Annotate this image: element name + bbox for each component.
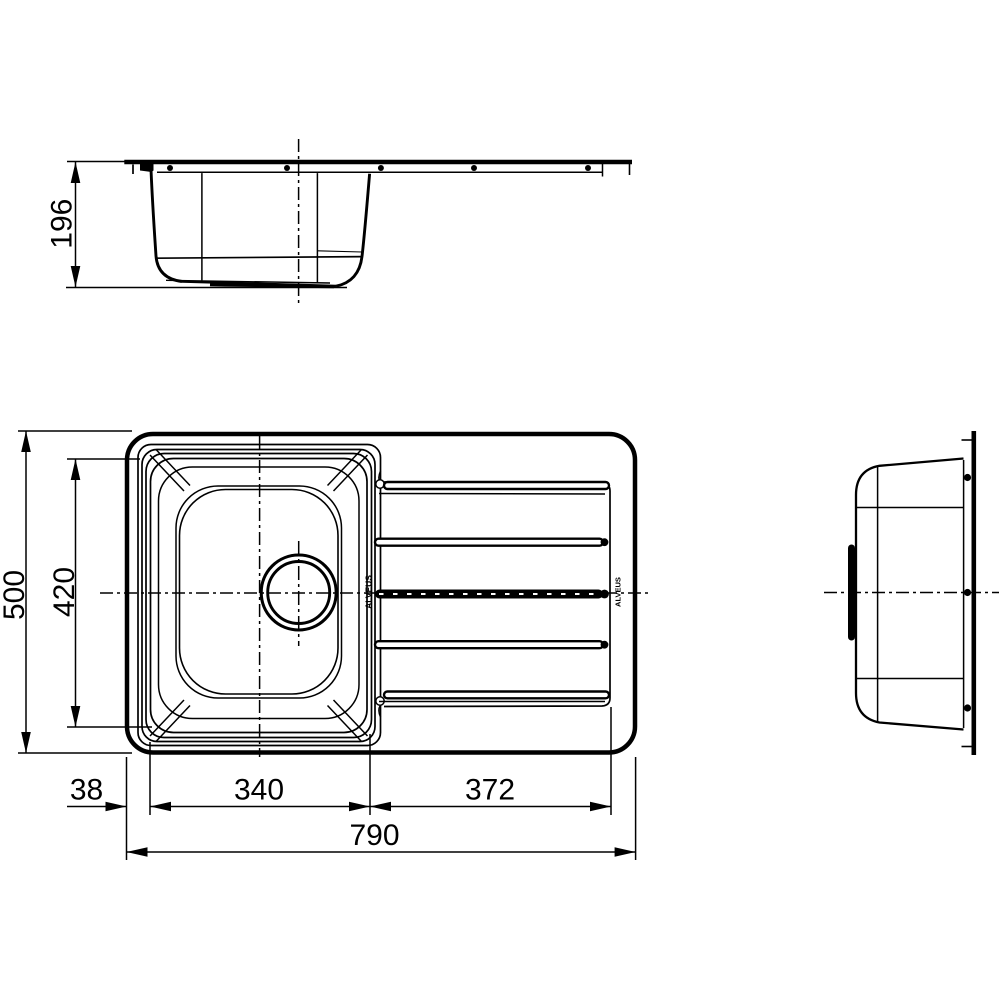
svg-text:372: 372 [465, 774, 515, 807]
svg-text:38: 38 [70, 774, 103, 807]
svg-text:340: 340 [234, 774, 284, 807]
svg-text:ALVEUS: ALVEUS [364, 575, 374, 609]
svg-text:500: 500 [0, 570, 31, 620]
svg-text:790: 790 [349, 819, 399, 852]
svg-text:420: 420 [48, 567, 81, 617]
svg-text:196: 196 [46, 199, 79, 249]
svg-text:ALVEUS: ALVEUS [614, 577, 623, 607]
